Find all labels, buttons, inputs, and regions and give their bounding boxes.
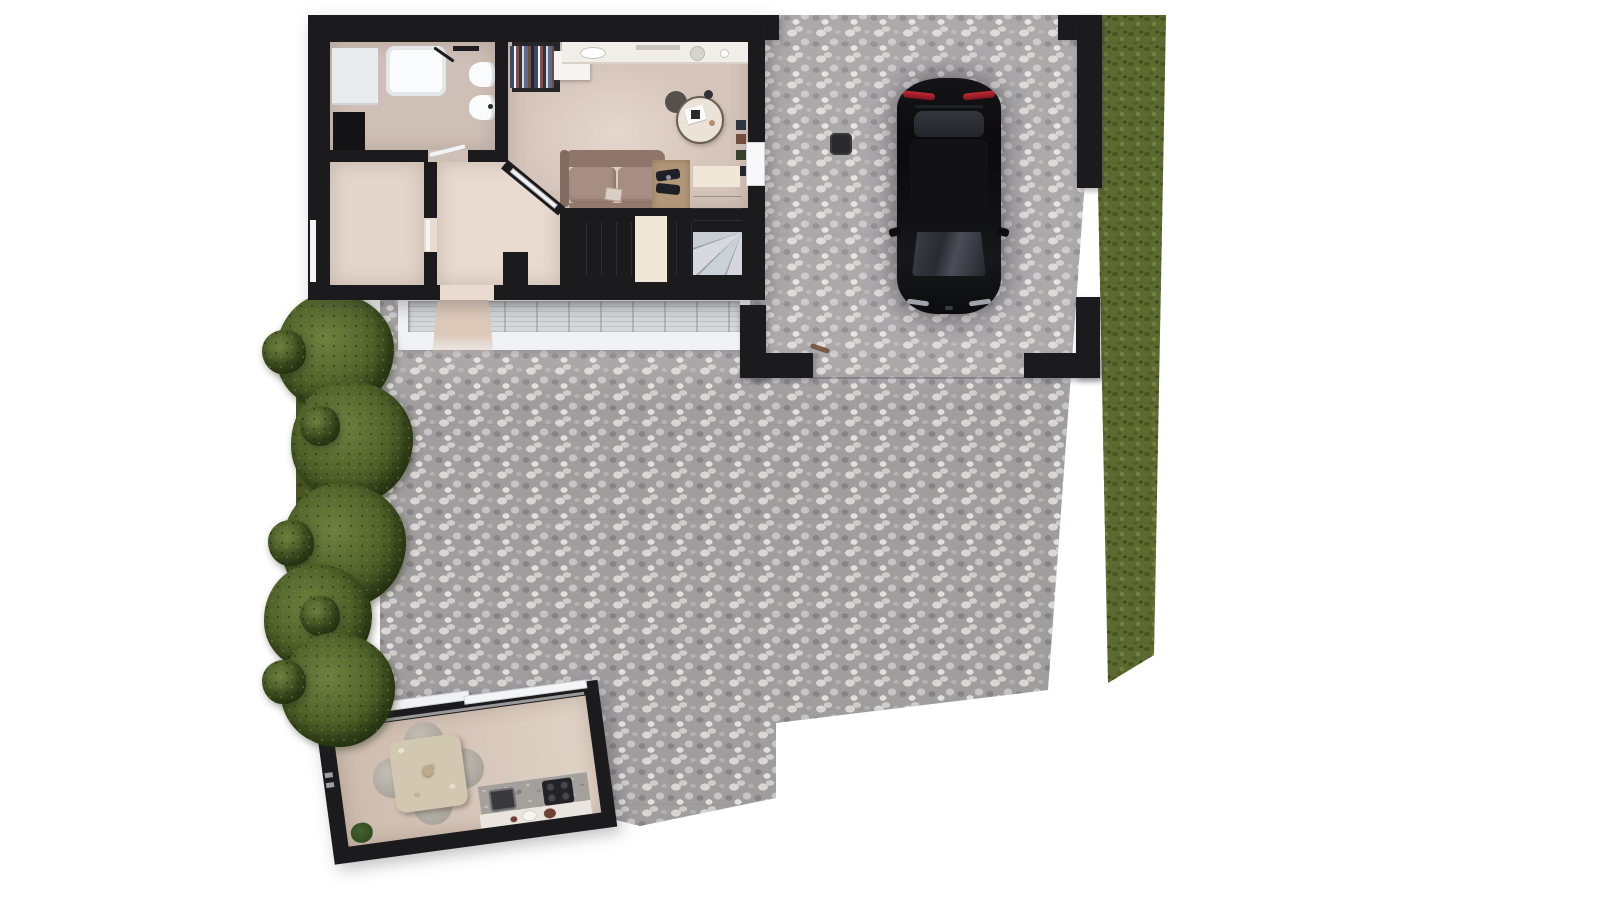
conifer-bush-small: [300, 406, 340, 446]
bathroom-shelf: [453, 46, 479, 51]
conifer-bush-small: [300, 596, 340, 636]
garden-stone-table: [388, 733, 469, 814]
floor-plan-scene: [0, 0, 1600, 900]
carport-pillar-bottom-left-arm: [740, 353, 813, 378]
door-handle: [326, 782, 335, 788]
toilet: [469, 62, 495, 87]
dark-booklet: [691, 110, 700, 119]
decor-item: [704, 90, 713, 99]
round-side-table: [676, 96, 724, 144]
stair-flight-upper: [693, 186, 742, 232]
table-centerpiece: [421, 765, 433, 777]
carport-wall-segment: [765, 15, 779, 40]
carport-wall-right: [1077, 15, 1102, 188]
bedroom-door-leaf: [426, 220, 430, 251]
cutlery: [666, 175, 671, 180]
sofa-backrest: [565, 150, 665, 167]
kitchenette-sink: [488, 787, 517, 812]
bathtub: [386, 46, 446, 96]
bedroom-window: [310, 220, 316, 282]
car-roof: [910, 139, 988, 230]
shelf-decor: [736, 150, 746, 160]
door-handle: [324, 772, 333, 778]
main-house: [308, 15, 765, 300]
carport-roof-edge-line: [813, 377, 1024, 379]
sofa-armrest: [560, 150, 569, 207]
bidet-faucet: [488, 104, 493, 109]
rear-window: [914, 111, 984, 137]
carport-pillar-bottom-right-arm: [1024, 353, 1100, 378]
hanging-clothes: [510, 46, 554, 88]
conifer-bush-small: [268, 520, 314, 566]
conifer-bush-small: [262, 660, 306, 704]
stair-flight-lower: [572, 222, 693, 275]
sofa-front-edge: [569, 203, 665, 209]
kitchen-sink: [580, 47, 606, 59]
bedroom-floor: [330, 162, 424, 285]
shelf-decor: [736, 120, 746, 130]
trunk-seam: [915, 105, 983, 108]
wall-stub: [503, 252, 528, 285]
vanity-cabinet: [333, 112, 365, 150]
stair-landing-box: [635, 216, 667, 282]
stair-winder-corner: [693, 232, 742, 275]
entrance-door-opening: [440, 285, 494, 300]
small-cup: [709, 120, 715, 126]
windshield: [912, 232, 986, 276]
conifer-bush-small: [262, 330, 306, 374]
black-car: [897, 78, 1001, 314]
cup: [720, 49, 729, 58]
lawn-strip: [1096, 15, 1168, 685]
counter-tray: [636, 45, 680, 50]
shelf-decor: [736, 134, 746, 144]
front-badge: [945, 306, 953, 310]
sofa-pillow: [604, 187, 623, 202]
paved-courtyard: [0, 0, 1600, 900]
drain-cover: [830, 133, 852, 155]
washing-machine: [332, 48, 378, 105]
entrance-doormat-path: [432, 293, 494, 357]
pot: [690, 46, 705, 61]
stair-top-cabinet: [693, 166, 740, 187]
side-window: [746, 142, 765, 186]
